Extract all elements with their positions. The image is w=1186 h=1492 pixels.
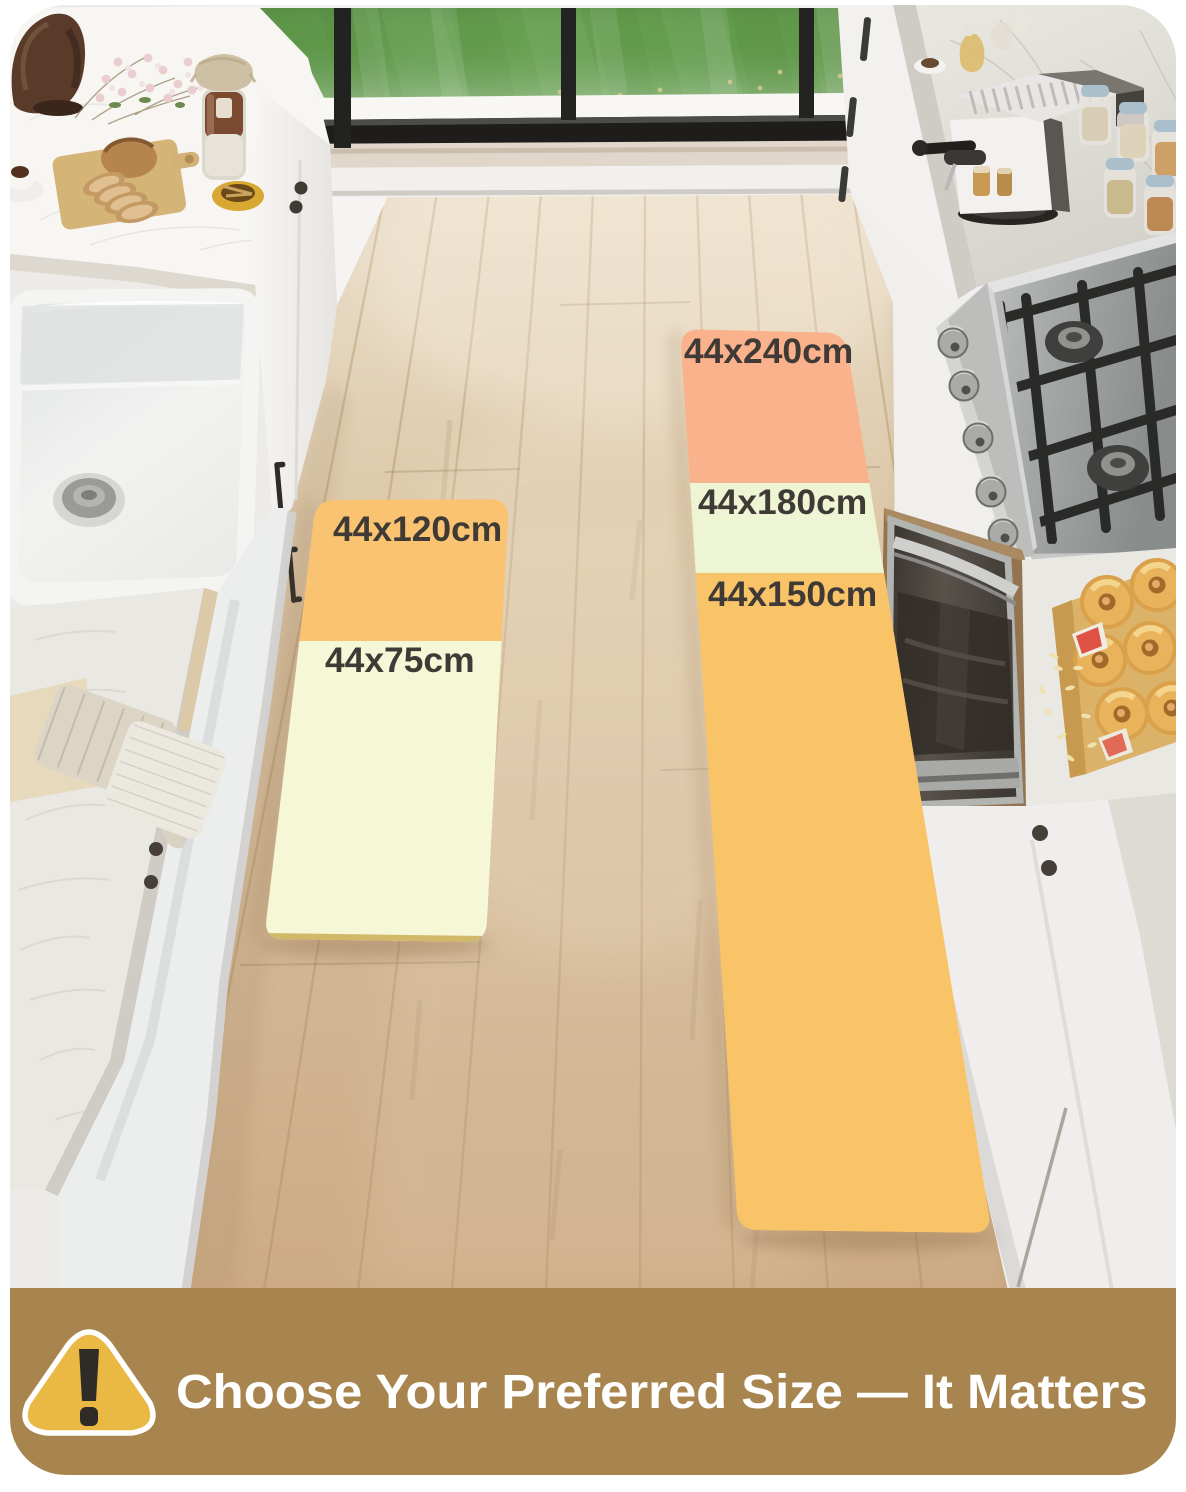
svg-text:44x150cm: 44x150cm [708, 574, 877, 614]
svg-text:Choose Your Preferred Size — I: Choose Your Preferred Size — It Matters [176, 1365, 1148, 1418]
svg-text:44x120cm: 44x120cm [333, 509, 502, 549]
svg-text:44x75cm: 44x75cm [325, 640, 475, 680]
svg-text:44x180cm: 44x180cm [698, 482, 867, 522]
svg-text:44x240cm: 44x240cm [684, 331, 853, 371]
